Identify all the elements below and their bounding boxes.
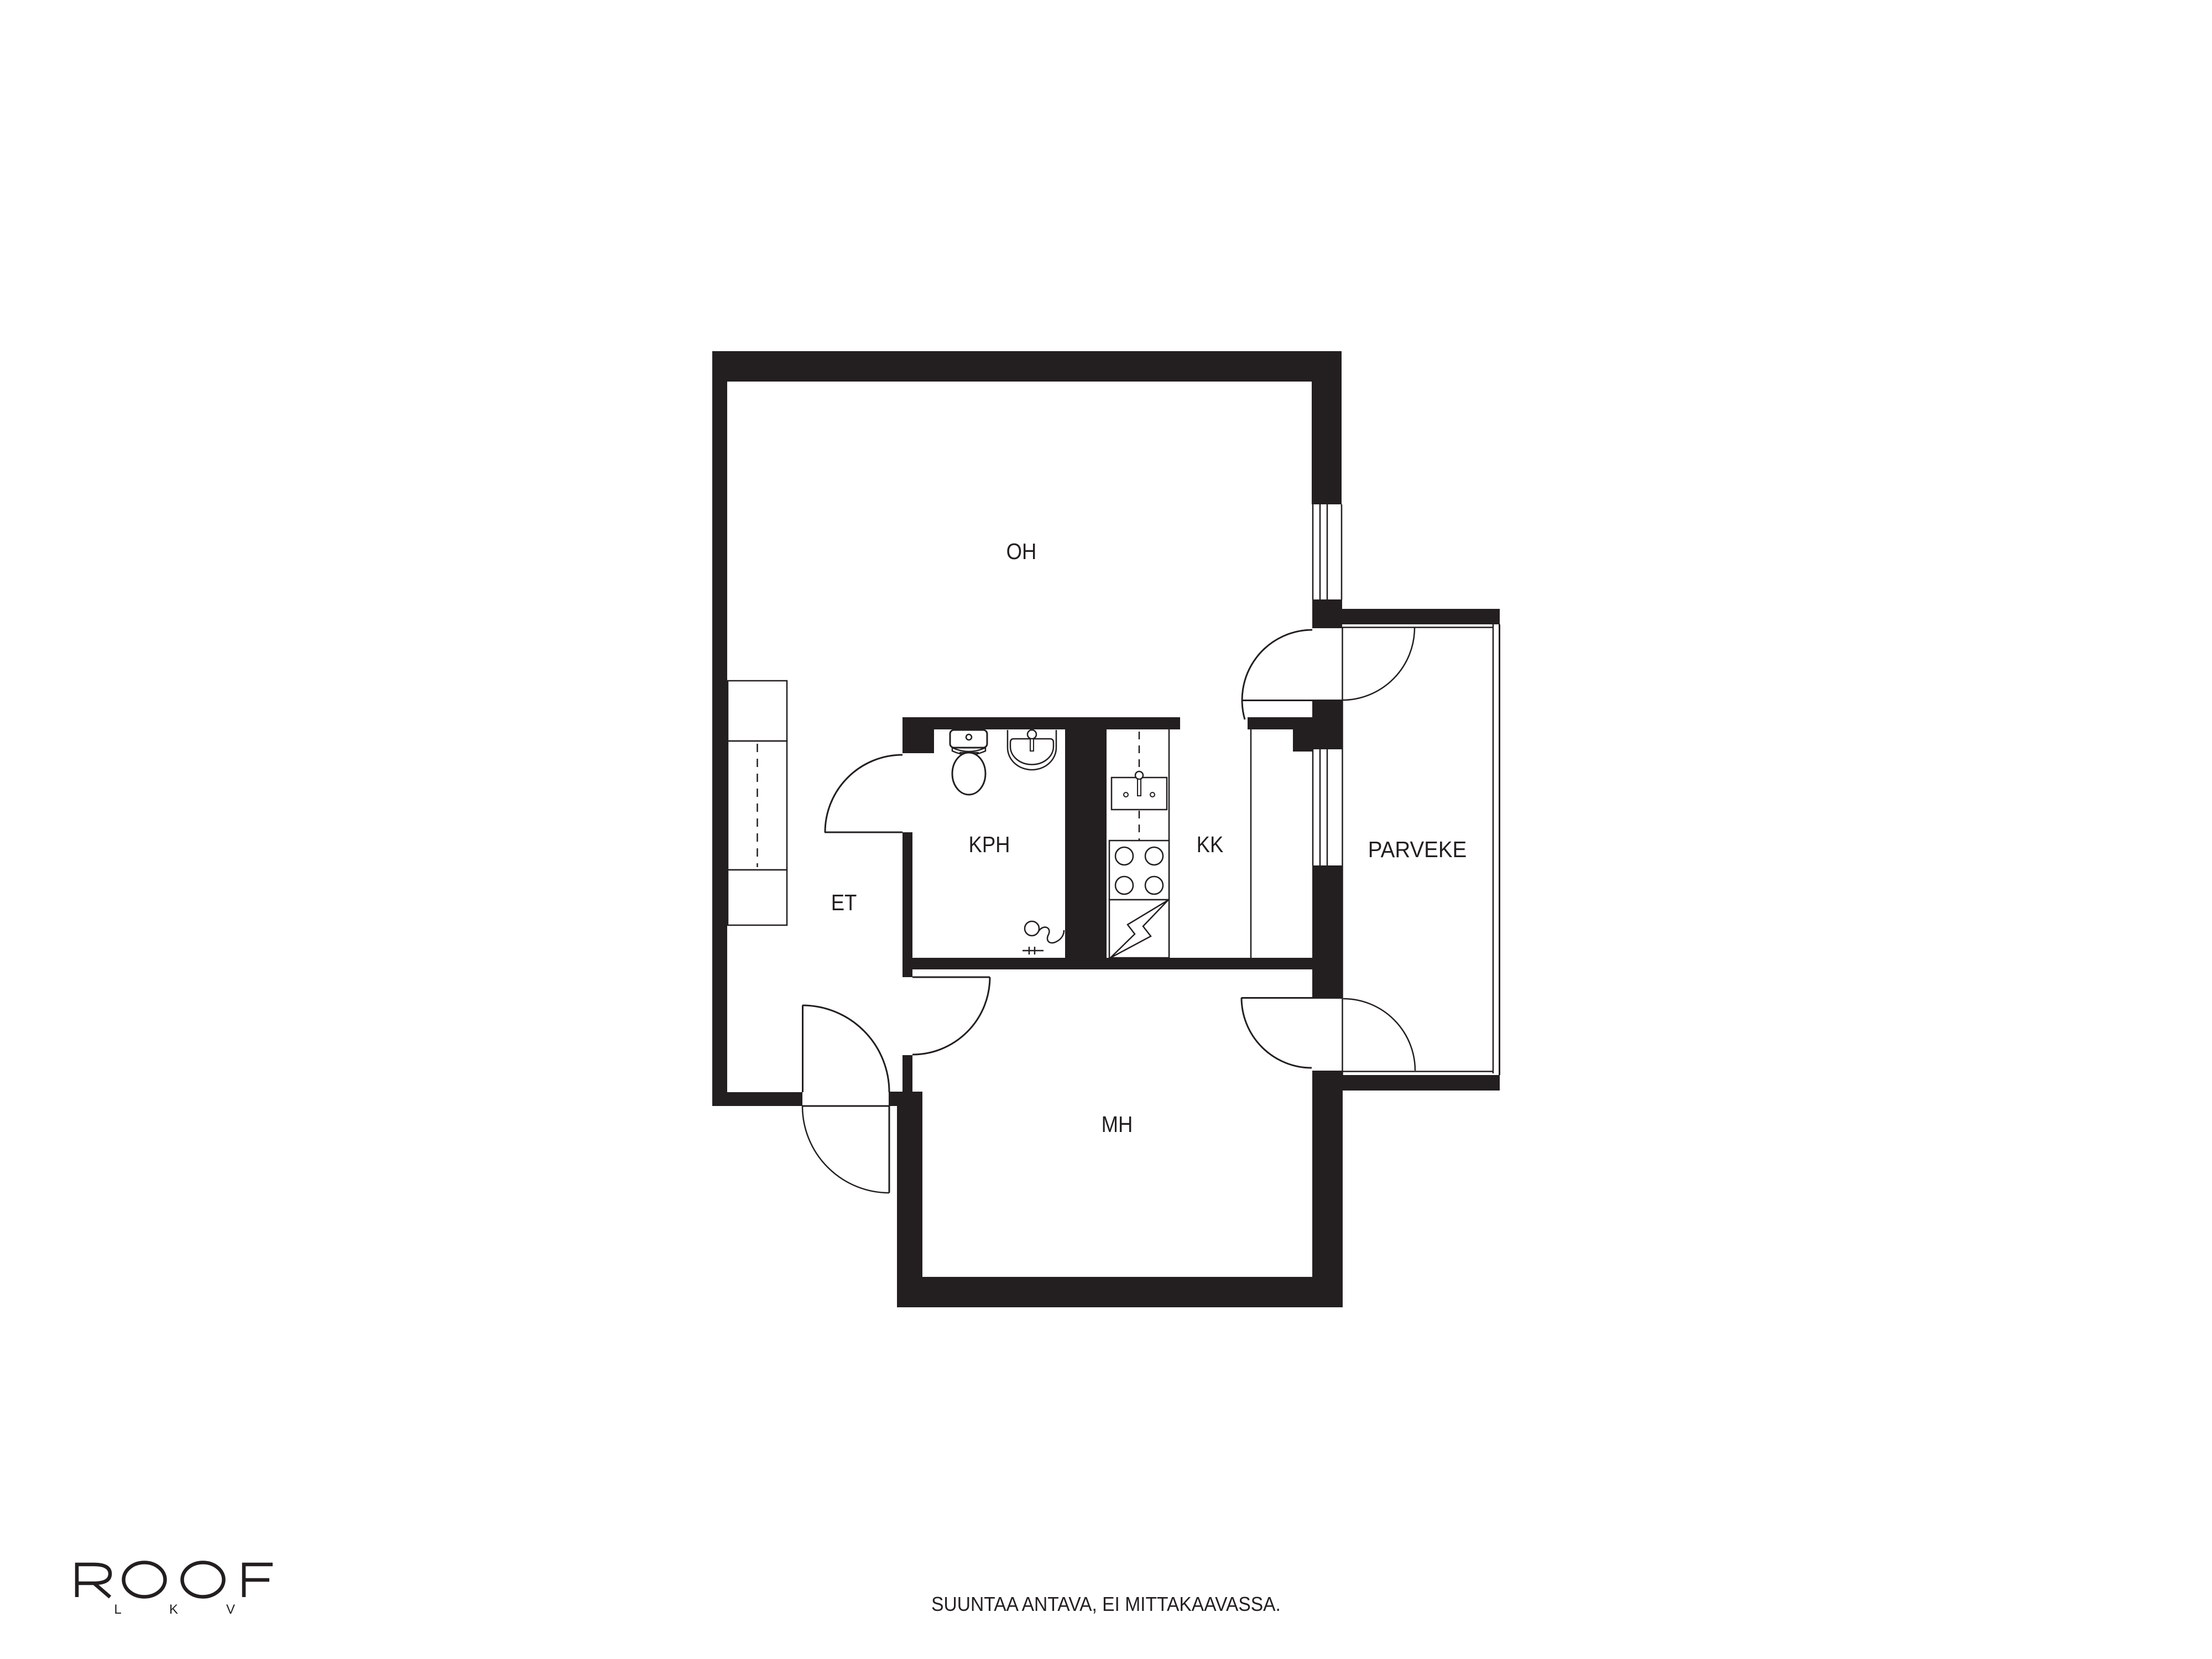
svg-text:L: L xyxy=(114,1602,121,1617)
svg-text:SUUNTAA ANTAVA, EI MITTAKAAVAS: SUUNTAA ANTAVA, EI MITTAKAAVASSA. xyxy=(931,1593,1281,1616)
svg-text:MH: MH xyxy=(1102,1112,1133,1137)
svg-text:V: V xyxy=(226,1602,235,1617)
svg-text:ET: ET xyxy=(831,890,857,915)
svg-text:PARVEKE: PARVEKE xyxy=(1368,837,1467,862)
svg-text:KPH: KPH xyxy=(968,832,1010,857)
svg-text:OH: OH xyxy=(1006,539,1037,564)
svg-text:K: K xyxy=(169,1602,178,1617)
svg-text:KK: KK xyxy=(1197,832,1224,857)
